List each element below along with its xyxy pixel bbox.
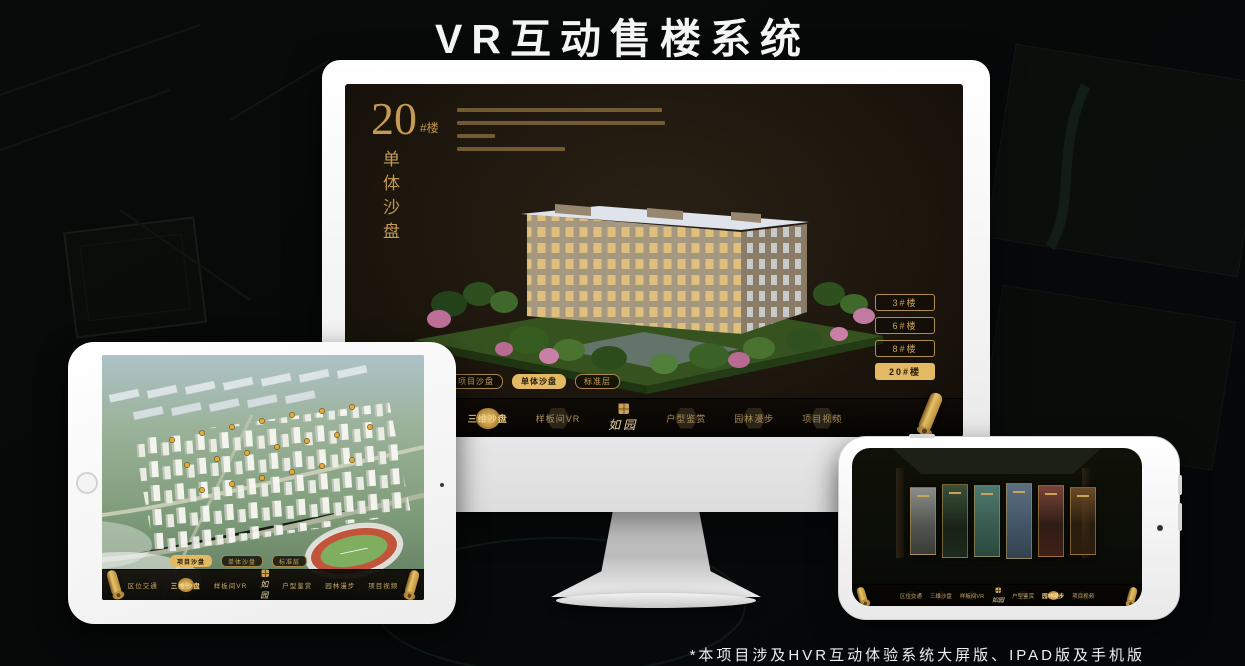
nav-item-showroom-vr[interactable]: 样板间VR <box>536 399 581 437</box>
nav-item-label: 项目视频 <box>368 580 398 590</box>
nav-item-label: 项目视频 <box>802 412 842 425</box>
poster-canvas: VR互动售楼系统 20 #楼 单体沙盘 <box>0 0 1245 666</box>
nav-item-unit-plans[interactable]: 户型鉴赏 <box>282 570 312 600</box>
scene-panel-row <box>910 482 1096 560</box>
building-3d-render <box>409 144 889 398</box>
scene-panel-study[interactable] <box>1070 487 1096 555</box>
nav-item-label: 三维沙盘 <box>468 412 508 425</box>
seal-icon <box>995 587 1001 593</box>
camera-icon <box>1157 525 1163 531</box>
phone-screen: 区位交通 三维沙盘 样板间VR 如园 户型鉴赏 <box>852 448 1142 606</box>
nav-item-location[interactable]: 区位交通 <box>900 585 922 606</box>
nav-item-label: 园林漫步 <box>325 580 355 590</box>
floor-button-6[interactable]: 6#楼 <box>875 317 935 334</box>
volume-button[interactable] <box>1178 475 1182 495</box>
brand-logo: 如园 <box>992 587 1004 604</box>
nav-item-label: 园林漫步 <box>1042 592 1064 600</box>
nav-item-3d-sandbox[interactable]: 三维沙盘 <box>930 585 952 606</box>
brand-logo-text: 如园 <box>992 595 1004 604</box>
brand-logo: 如园 <box>260 569 269 600</box>
monitor-base <box>556 593 756 608</box>
nav-item-label: 项目视频 <box>1072 592 1094 600</box>
nav-item-label: 样板间VR <box>214 580 248 590</box>
floor-suffix: #楼 <box>420 119 439 136</box>
mute-switch[interactable] <box>909 434 935 438</box>
tablet-screen: 项目沙盘 单体沙盘 标准层 区位交通 三维沙盘 样板间VR <box>102 355 424 600</box>
floor-button-8[interactable]: 8#楼 <box>875 340 935 357</box>
nav-item-3d-sandbox[interactable]: 三维沙盘 <box>468 399 508 437</box>
nav-item-label: 样板间VR <box>960 592 984 600</box>
nav-item-unit-plans[interactable]: 户型鉴赏 <box>1012 585 1034 606</box>
camera-icon <box>440 483 444 487</box>
seal-icon <box>261 569 269 577</box>
tab-project-sandbox[interactable]: 项目沙盘 <box>170 555 212 567</box>
power-button[interactable] <box>1178 503 1182 531</box>
pavilion-roof-render <box>892 448 1102 474</box>
tab-single-sandbox[interactable]: 单体沙盘 <box>221 555 263 567</box>
floor-button-20[interactable]: 20#楼 <box>875 363 935 380</box>
sandbox-mode-tabs: 项目沙盘 单体沙盘 标准层 <box>449 374 620 389</box>
scene-panel-landscape[interactable] <box>974 485 1000 557</box>
nav-item-label: 样板间VR <box>536 412 581 425</box>
tab-standard-floor[interactable]: 标准层 <box>272 555 307 567</box>
floor-number: 20 <box>371 96 417 142</box>
nav-item-garden-walk[interactable]: 园林漫步 <box>1042 585 1064 606</box>
nav-item-label: 区位交通 <box>128 580 158 590</box>
floor-subtitle: 单体沙盘 <box>377 150 402 268</box>
tab-standard-floor[interactable]: 标准层 <box>575 374 620 389</box>
nav-item-label: 三维沙盘 <box>930 592 952 600</box>
seal-icon <box>618 403 629 414</box>
floor-button-group: 3#楼 6#楼 8#楼 20#楼 <box>875 294 935 380</box>
tablet-sandbox-mode-tabs: 项目沙盘 单体沙盘 标准层 <box>170 555 307 567</box>
nav-item-project-video[interactable]: 项目视频 <box>1072 585 1094 606</box>
footnote: *本项目涉及HVR互动体验系统大屏版、IPAD版及手机版 <box>690 644 1145 665</box>
nav-item-garden-walk[interactable]: 园林漫步 <box>325 570 355 600</box>
nav-item-location[interactable]: 区位交通 <box>128 570 158 600</box>
brand-logo: 如园 <box>608 403 638 433</box>
nav-item-label: 区位交通 <box>900 592 922 600</box>
nav-item-label: 园林漫步 <box>734 412 774 425</box>
tab-project-sandbox[interactable]: 项目沙盘 <box>449 374 503 389</box>
home-button[interactable] <box>76 472 98 494</box>
floor-button-3[interactable]: 3#楼 <box>875 294 935 311</box>
phone-mockup: 区位交通 三维沙盘 样板间VR 如园 户型鉴赏 <box>838 436 1180 620</box>
scene-panel-building[interactable] <box>1006 483 1032 559</box>
nav-item-project-video[interactable]: 项目视频 <box>802 399 842 437</box>
pillar-render <box>896 468 904 558</box>
nav-item-label: 三维沙盘 <box>171 580 201 590</box>
nav-item-garden-walk[interactable]: 园林漫步 <box>734 399 774 437</box>
page-title: VR互动售楼系统 <box>0 5 1245 65</box>
nav-item-label: 户型鉴赏 <box>1012 592 1034 600</box>
nav-item-project-video[interactable]: 项目视频 <box>368 570 398 600</box>
nav-item-unit-plans[interactable]: 户型鉴赏 <box>666 399 706 437</box>
nav-item-label: 户型鉴赏 <box>282 580 312 590</box>
nav-item-showroom-vr[interactable]: 样板间VR <box>960 585 984 606</box>
tab-single-sandbox[interactable]: 单体沙盘 <box>512 374 566 389</box>
scene-panel-autumn[interactable] <box>1038 485 1064 557</box>
scene-panel-interior[interactable] <box>910 487 936 555</box>
nav-item-3d-sandbox[interactable]: 三维沙盘 <box>171 570 201 600</box>
tablet-navbar: 区位交通 三维沙盘 样板间VR 如园 户型鉴赏 <box>102 569 424 600</box>
brand-logo-text: 如园 <box>260 579 269 600</box>
nav-item-showroom-vr[interactable]: 样板间VR <box>214 570 248 600</box>
scene-panel-courtyard[interactable] <box>942 484 968 558</box>
tablet-mockup: 项目沙盘 单体沙盘 标准层 区位交通 三维沙盘 样板间VR <box>68 342 456 624</box>
brand-logo-text: 如园 <box>608 416 638 433</box>
nav-item-label: 户型鉴赏 <box>666 412 706 425</box>
phone-navbar: 区位交通 三维沙盘 样板间VR 如园 户型鉴赏 <box>852 584 1142 606</box>
